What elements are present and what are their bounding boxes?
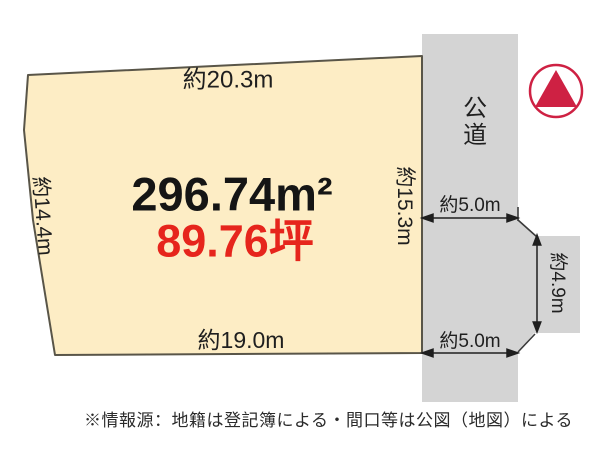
- dimension-top-label: 約20.3m: [183, 67, 274, 92]
- dimension-bottom-label: 約19.0m: [198, 328, 285, 352]
- source-disclaimer: ※情報源：地籍は登記簿による・間口等は公図（地図）による: [84, 412, 573, 430]
- dimension-right-label: 約15.3m: [393, 166, 415, 245]
- north-compass-icon: [530, 65, 582, 117]
- public-road-label: 公道: [459, 95, 484, 149]
- land-plot-diagram: 約20.3m 約14.4m 約15.3m 約19.0m 296.74m² 89.…: [0, 0, 600, 450]
- plot-area-tsubo: 89.76坪: [156, 217, 314, 264]
- road-width-lower-label: 約5.0m: [439, 332, 500, 352]
- road-width-upper-label: 約5.0m: [439, 196, 500, 216]
- side-road-width-label: 約4.9m: [547, 252, 567, 313]
- plot-area-sqm: 296.74m²: [131, 169, 332, 218]
- dimension-left-label: 約14.4m: [28, 176, 56, 257]
